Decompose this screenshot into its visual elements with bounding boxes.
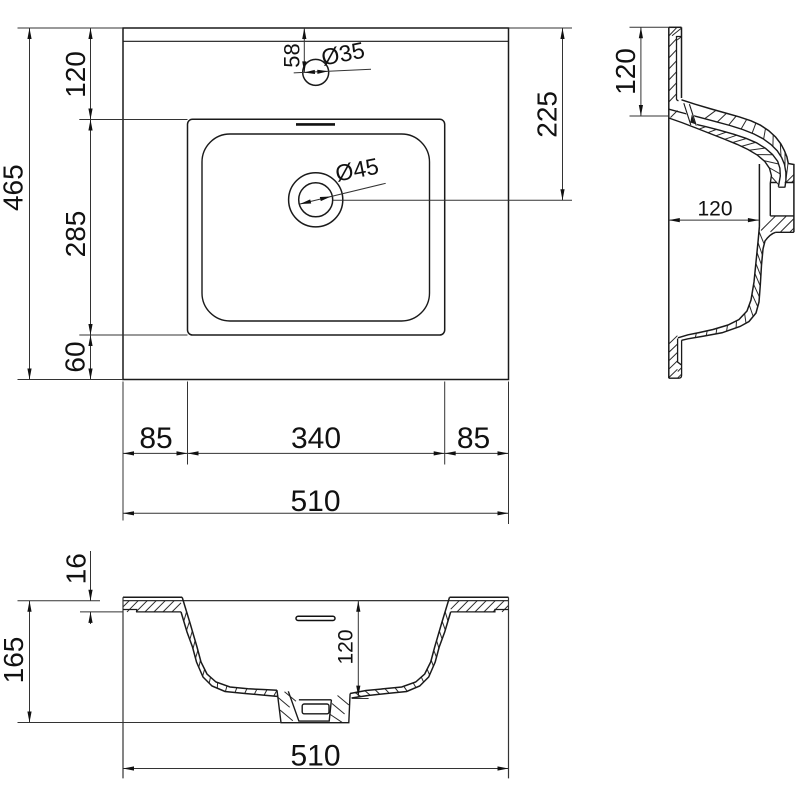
svg-text:85: 85 <box>457 422 490 455</box>
svg-text:120: 120 <box>610 48 641 95</box>
svg-text:60: 60 <box>60 341 91 372</box>
svg-text:58: 58 <box>280 43 305 67</box>
svg-text:120: 120 <box>60 51 91 98</box>
svg-text:340: 340 <box>291 422 341 455</box>
svg-text:285: 285 <box>60 211 91 258</box>
svg-text:120: 120 <box>697 197 732 220</box>
svg-text:165: 165 <box>0 637 29 684</box>
svg-text:120: 120 <box>334 629 357 664</box>
svg-text:465: 465 <box>0 164 29 211</box>
svg-text:85: 85 <box>139 422 172 455</box>
svg-text:510: 510 <box>290 485 340 518</box>
svg-text:16: 16 <box>60 553 91 584</box>
svg-text:510: 510 <box>290 740 340 773</box>
svg-text:225: 225 <box>532 91 563 138</box>
